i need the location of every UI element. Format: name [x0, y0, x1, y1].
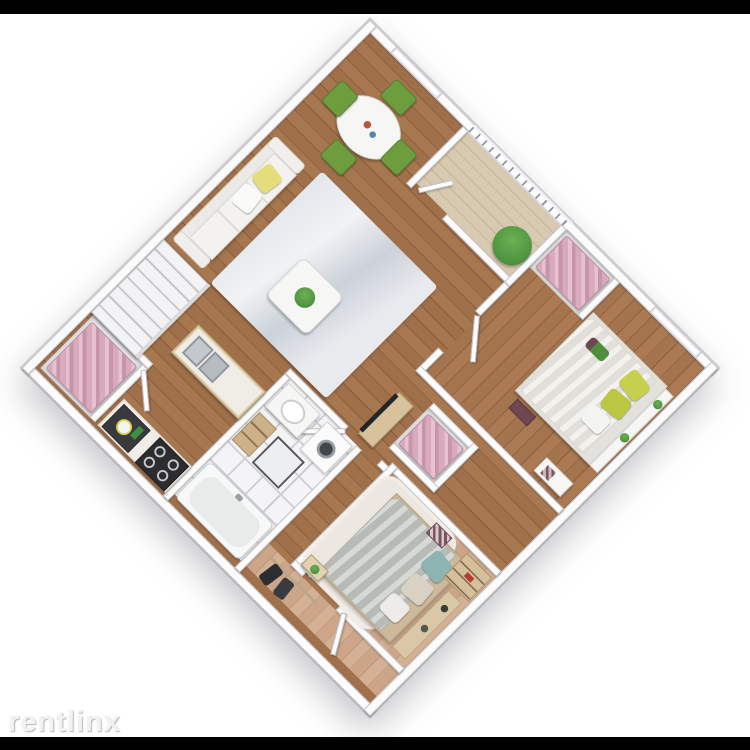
burner-3	[141, 454, 157, 470]
table-decor-2	[368, 130, 377, 139]
floorplan-screenshot: rentlinx	[0, 0, 750, 750]
apartment-floorplan	[19, 17, 721, 719]
bench-decor	[540, 465, 556, 481]
red-book	[464, 572, 475, 583]
washer-door	[313, 436, 340, 463]
letterbox-bar-top	[0, 0, 750, 14]
coffee-table-plant	[290, 283, 319, 312]
burner-4	[155, 468, 171, 484]
bench-candle-1	[439, 603, 450, 614]
bench-candle-2	[419, 623, 430, 634]
nightstand-plant	[308, 563, 321, 576]
burner-1	[152, 444, 168, 460]
rentlinx-watermark: rentlinx	[8, 706, 121, 739]
table-decor	[362, 119, 373, 130]
burner-2	[165, 457, 181, 473]
